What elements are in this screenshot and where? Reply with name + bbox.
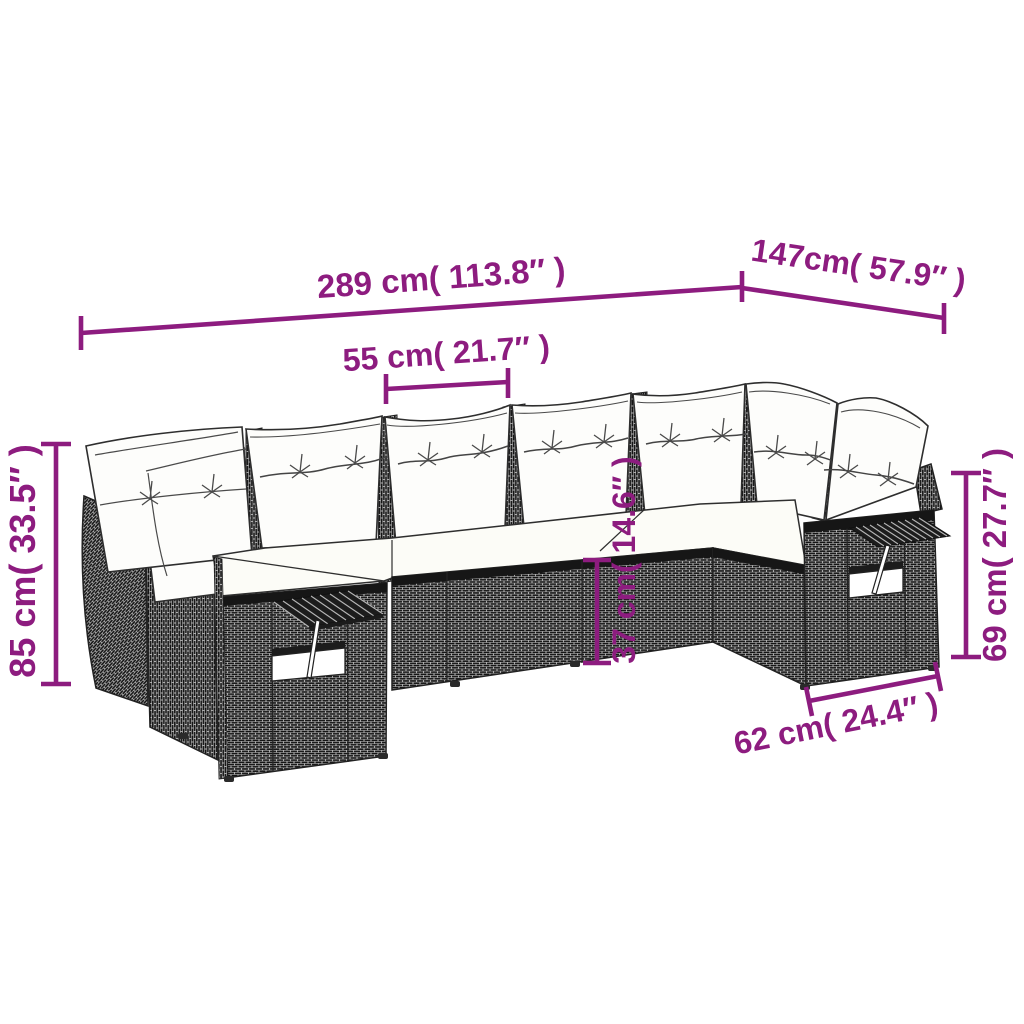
svg-text:69 cm( 27.7″ ): 69 cm( 27.7″ ) — [976, 448, 1013, 662]
svg-text:55 cm( 21.7″ ): 55 cm( 21.7″ ) — [342, 328, 551, 378]
svg-text:85 cm( 33.5″ ): 85 cm( 33.5″ ) — [2, 444, 43, 677]
svg-text:147cm( 57.9″ ): 147cm( 57.9″ ) — [749, 232, 968, 299]
svg-text:37 cm( 14.6″ ): 37 cm( 14.6″ ) — [606, 456, 642, 663]
svg-text:289 cm( 113.8″ ): 289 cm( 113.8″ ) — [316, 250, 567, 305]
